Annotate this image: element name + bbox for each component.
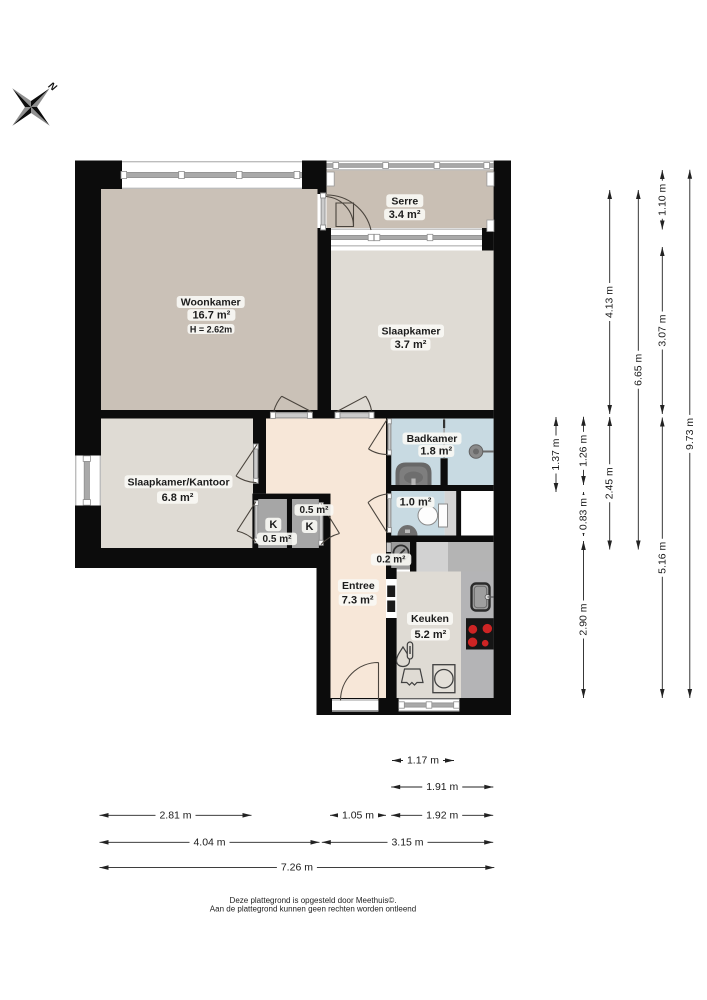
svg-text:4.04 m: 4.04 m <box>193 836 225 848</box>
svg-text:2.45 m: 2.45 m <box>604 467 616 499</box>
svg-text:1.8 m²: 1.8 m² <box>420 446 452 458</box>
svg-text:16.7 m²: 16.7 m² <box>192 310 230 322</box>
svg-text:3.07 m: 3.07 m <box>656 314 668 346</box>
svg-text:0.5 m²: 0.5 m² <box>300 505 330 516</box>
svg-text:9.73 m: 9.73 m <box>684 418 696 450</box>
svg-text:1.91 m: 1.91 m <box>426 781 458 793</box>
svg-text:4.13 m: 4.13 m <box>604 286 616 318</box>
svg-text:1.10 m: 1.10 m <box>656 183 668 215</box>
svg-text:3.7 m²: 3.7 m² <box>395 339 427 351</box>
svg-text:K: K <box>269 519 277 531</box>
svg-text:1.17 m: 1.17 m <box>407 755 439 767</box>
svg-text:7.26 m: 7.26 m <box>281 862 313 874</box>
svg-text:3.4 m²: 3.4 m² <box>389 209 421 221</box>
svg-text:1.05 m: 1.05 m <box>342 809 374 821</box>
svg-text:2.81 m: 2.81 m <box>159 809 191 821</box>
svg-text:7.3 m²: 7.3 m² <box>342 594 374 606</box>
svg-text:Slaapkamer: Slaapkamer <box>382 326 441 338</box>
svg-text:Slaapkamer/Kantoor: Slaapkamer/Kantoor <box>127 476 229 488</box>
svg-text:Keuken: Keuken <box>411 613 449 625</box>
svg-text:0.5 m²: 0.5 m² <box>263 534 293 545</box>
svg-text:H = 2.62m: H = 2.62m <box>190 325 232 335</box>
svg-text:K: K <box>306 521 314 533</box>
svg-text:0.2 m²: 0.2 m² <box>377 555 407 566</box>
svg-text:Entree: Entree <box>342 580 375 592</box>
svg-text:0.83 m: 0.83 m <box>578 498 590 530</box>
svg-text:5.16 m: 5.16 m <box>656 541 668 573</box>
svg-text:5.2 m²: 5.2 m² <box>415 629 447 641</box>
svg-text:1.26 m: 1.26 m <box>578 435 590 467</box>
svg-text:1.0 m²: 1.0 m² <box>400 497 432 509</box>
svg-text:Aan de plattegrond kunnen geen: Aan de plattegrond kunnen geen rechten w… <box>210 905 416 914</box>
svg-text:6.8 m²: 6.8 m² <box>162 492 194 504</box>
svg-text:2.90 m: 2.90 m <box>578 603 590 635</box>
svg-text:Serre: Serre <box>391 195 418 207</box>
svg-text:6.65 m: 6.65 m <box>632 353 644 385</box>
svg-text:Badkamer: Badkamer <box>407 433 458 445</box>
svg-text:Woonkamer: Woonkamer <box>181 297 241 309</box>
svg-text:1.37 m: 1.37 m <box>550 438 562 470</box>
svg-text:1.92 m: 1.92 m <box>426 809 458 821</box>
svg-text:3.15 m: 3.15 m <box>391 836 423 848</box>
